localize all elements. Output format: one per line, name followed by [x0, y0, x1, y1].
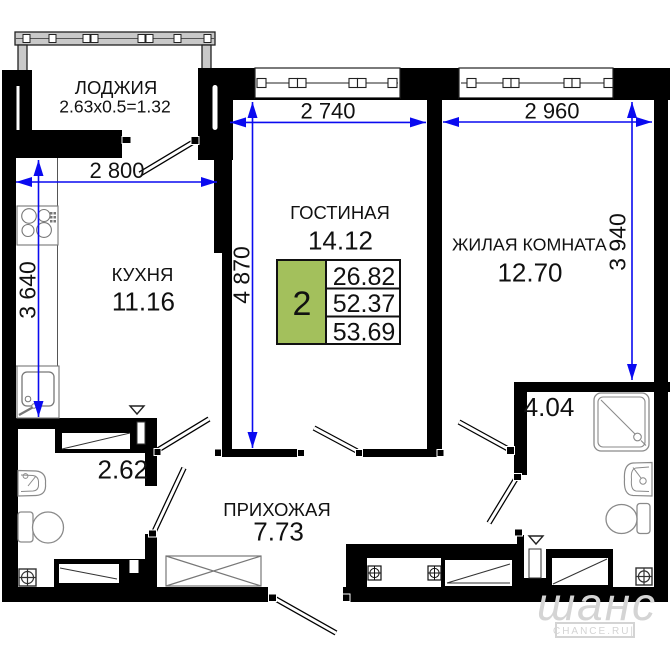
svg-text:ЖИЛАЯ КОМНАТА: ЖИЛАЯ КОМНАТА: [452, 235, 607, 255]
svg-text:3 940: 3 940: [605, 213, 631, 271]
svg-text:CHANCE.RU|: CHANCE.RU|: [553, 626, 635, 637]
svg-text:2: 2: [293, 285, 312, 323]
svg-text:53.69: 53.69: [333, 319, 396, 347]
svg-text:12.70: 12.70: [497, 258, 562, 288]
svg-text:2 800: 2 800: [89, 158, 144, 183]
svg-text:КУХНЯ: КУХНЯ: [112, 264, 174, 285]
svg-text:ЛОДЖИЯ: ЛОДЖИЯ: [75, 77, 157, 98]
svg-text:4.04: 4.04: [524, 392, 575, 422]
svg-text:11.16: 11.16: [112, 287, 175, 317]
svg-text:52.37: 52.37: [333, 290, 396, 318]
svg-text:2.62: 2.62: [97, 454, 148, 484]
svg-text:ГОСТИНАЯ: ГОСТИНАЯ: [290, 202, 390, 223]
svg-text:7.73: 7.73: [253, 517, 304, 547]
svg-text:14.12: 14.12: [308, 226, 373, 256]
svg-text:26.82: 26.82: [333, 263, 396, 291]
svg-text:2 740: 2 740: [300, 99, 355, 124]
svg-text:3 640: 3 640: [15, 261, 41, 319]
svg-text:4 870: 4 870: [229, 246, 255, 304]
svg-text:2 960: 2 960: [524, 99, 579, 124]
svg-text:2.63x0.5=1.32: 2.63x0.5=1.32: [59, 97, 170, 117]
